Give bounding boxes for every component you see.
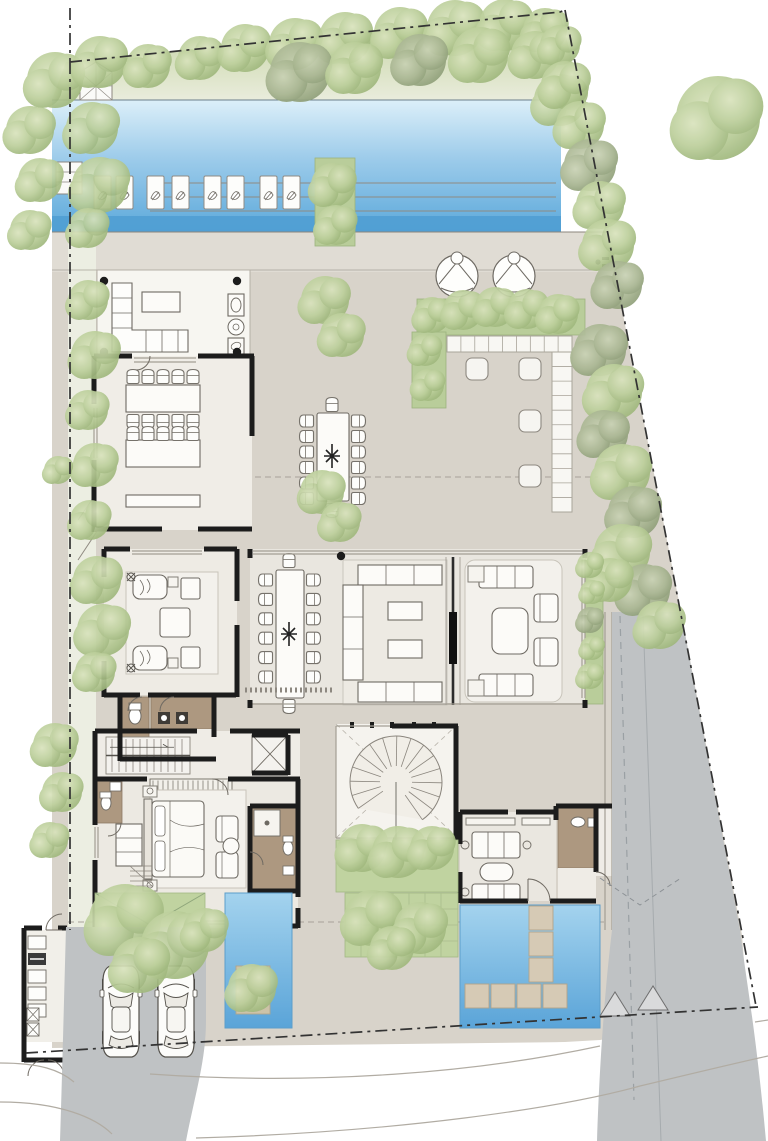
family-room (465, 560, 562, 702)
dining-chair (307, 632, 321, 644)
dining-chair (157, 427, 169, 441)
dining-chair (307, 671, 321, 683)
dining-chair (352, 415, 366, 427)
ottoman-stool (519, 358, 541, 380)
shelf-unit (28, 970, 46, 983)
bench (552, 352, 572, 512)
indoor-dining-table (276, 570, 304, 698)
stepping-stone (543, 984, 567, 1008)
dining-chair (300, 446, 314, 458)
dining-chair (259, 574, 273, 586)
ottoman-stool (519, 410, 541, 432)
sun-lounger (172, 176, 189, 209)
bbq-grill (228, 294, 244, 354)
dining-chair (172, 427, 184, 441)
dining-chair (283, 554, 295, 568)
swimming-pool (52, 100, 561, 232)
dining-chair (307, 652, 321, 664)
stepping-stone (529, 906, 553, 930)
dining-chair (352, 477, 366, 489)
dining-chair (259, 613, 273, 625)
tree (2, 106, 56, 154)
stepping-stone (529, 958, 553, 982)
dining-chair (307, 593, 321, 605)
dining-chair (187, 370, 199, 384)
sun-lounger (227, 176, 244, 209)
tree (7, 210, 52, 250)
ottoman-stool (466, 358, 488, 380)
dining-chair (352, 462, 366, 474)
shelf-unit (28, 936, 46, 949)
ottoman-stool (519, 465, 541, 487)
sun-lounger (204, 176, 221, 209)
column (233, 277, 241, 285)
dining-chair (157, 370, 169, 384)
dining-chair (300, 431, 314, 443)
dining-chair (352, 446, 366, 458)
dining-chair (172, 370, 184, 384)
dining-chair (352, 431, 366, 443)
sun-lounger (147, 176, 164, 209)
sun-lounger (260, 176, 277, 209)
shelf-unit (28, 987, 46, 1000)
sun-lounger (283, 176, 300, 209)
tree (670, 76, 764, 160)
dining-chair (187, 427, 199, 441)
dining-chair (326, 398, 338, 412)
bench (447, 336, 572, 352)
dining-chair (300, 415, 314, 427)
elevator (252, 735, 288, 773)
stepping-stone (491, 984, 515, 1008)
dining-chair (142, 370, 154, 384)
long-table-2 (126, 440, 200, 467)
dining-chair (352, 493, 366, 505)
bed-headboard (144, 799, 152, 879)
dining-chair (127, 427, 139, 441)
column (337, 552, 345, 560)
dining-chair (259, 671, 273, 683)
dining-chair (127, 370, 139, 384)
stepping-stone (517, 984, 541, 1008)
sitting-room (126, 572, 218, 674)
coffee-table (142, 292, 180, 312)
pool-deep-band (52, 216, 561, 232)
long-table-1 (126, 385, 200, 412)
dresser (116, 824, 142, 866)
site-plan-canvas (0, 0, 768, 1141)
dining-chair (283, 700, 295, 714)
floor-plan-drawing (0, 0, 768, 1141)
dining-chair (307, 613, 321, 625)
dining-chair (142, 427, 154, 441)
dining-chair (307, 574, 321, 586)
dining-chair (259, 593, 273, 605)
dining-chair (300, 462, 314, 474)
stepping-stone (465, 984, 489, 1008)
dining-chair (259, 632, 273, 644)
stepping-stone (529, 932, 553, 956)
credenza (126, 495, 200, 507)
dining-chair (259, 652, 273, 664)
living-room-sofas (343, 560, 447, 705)
